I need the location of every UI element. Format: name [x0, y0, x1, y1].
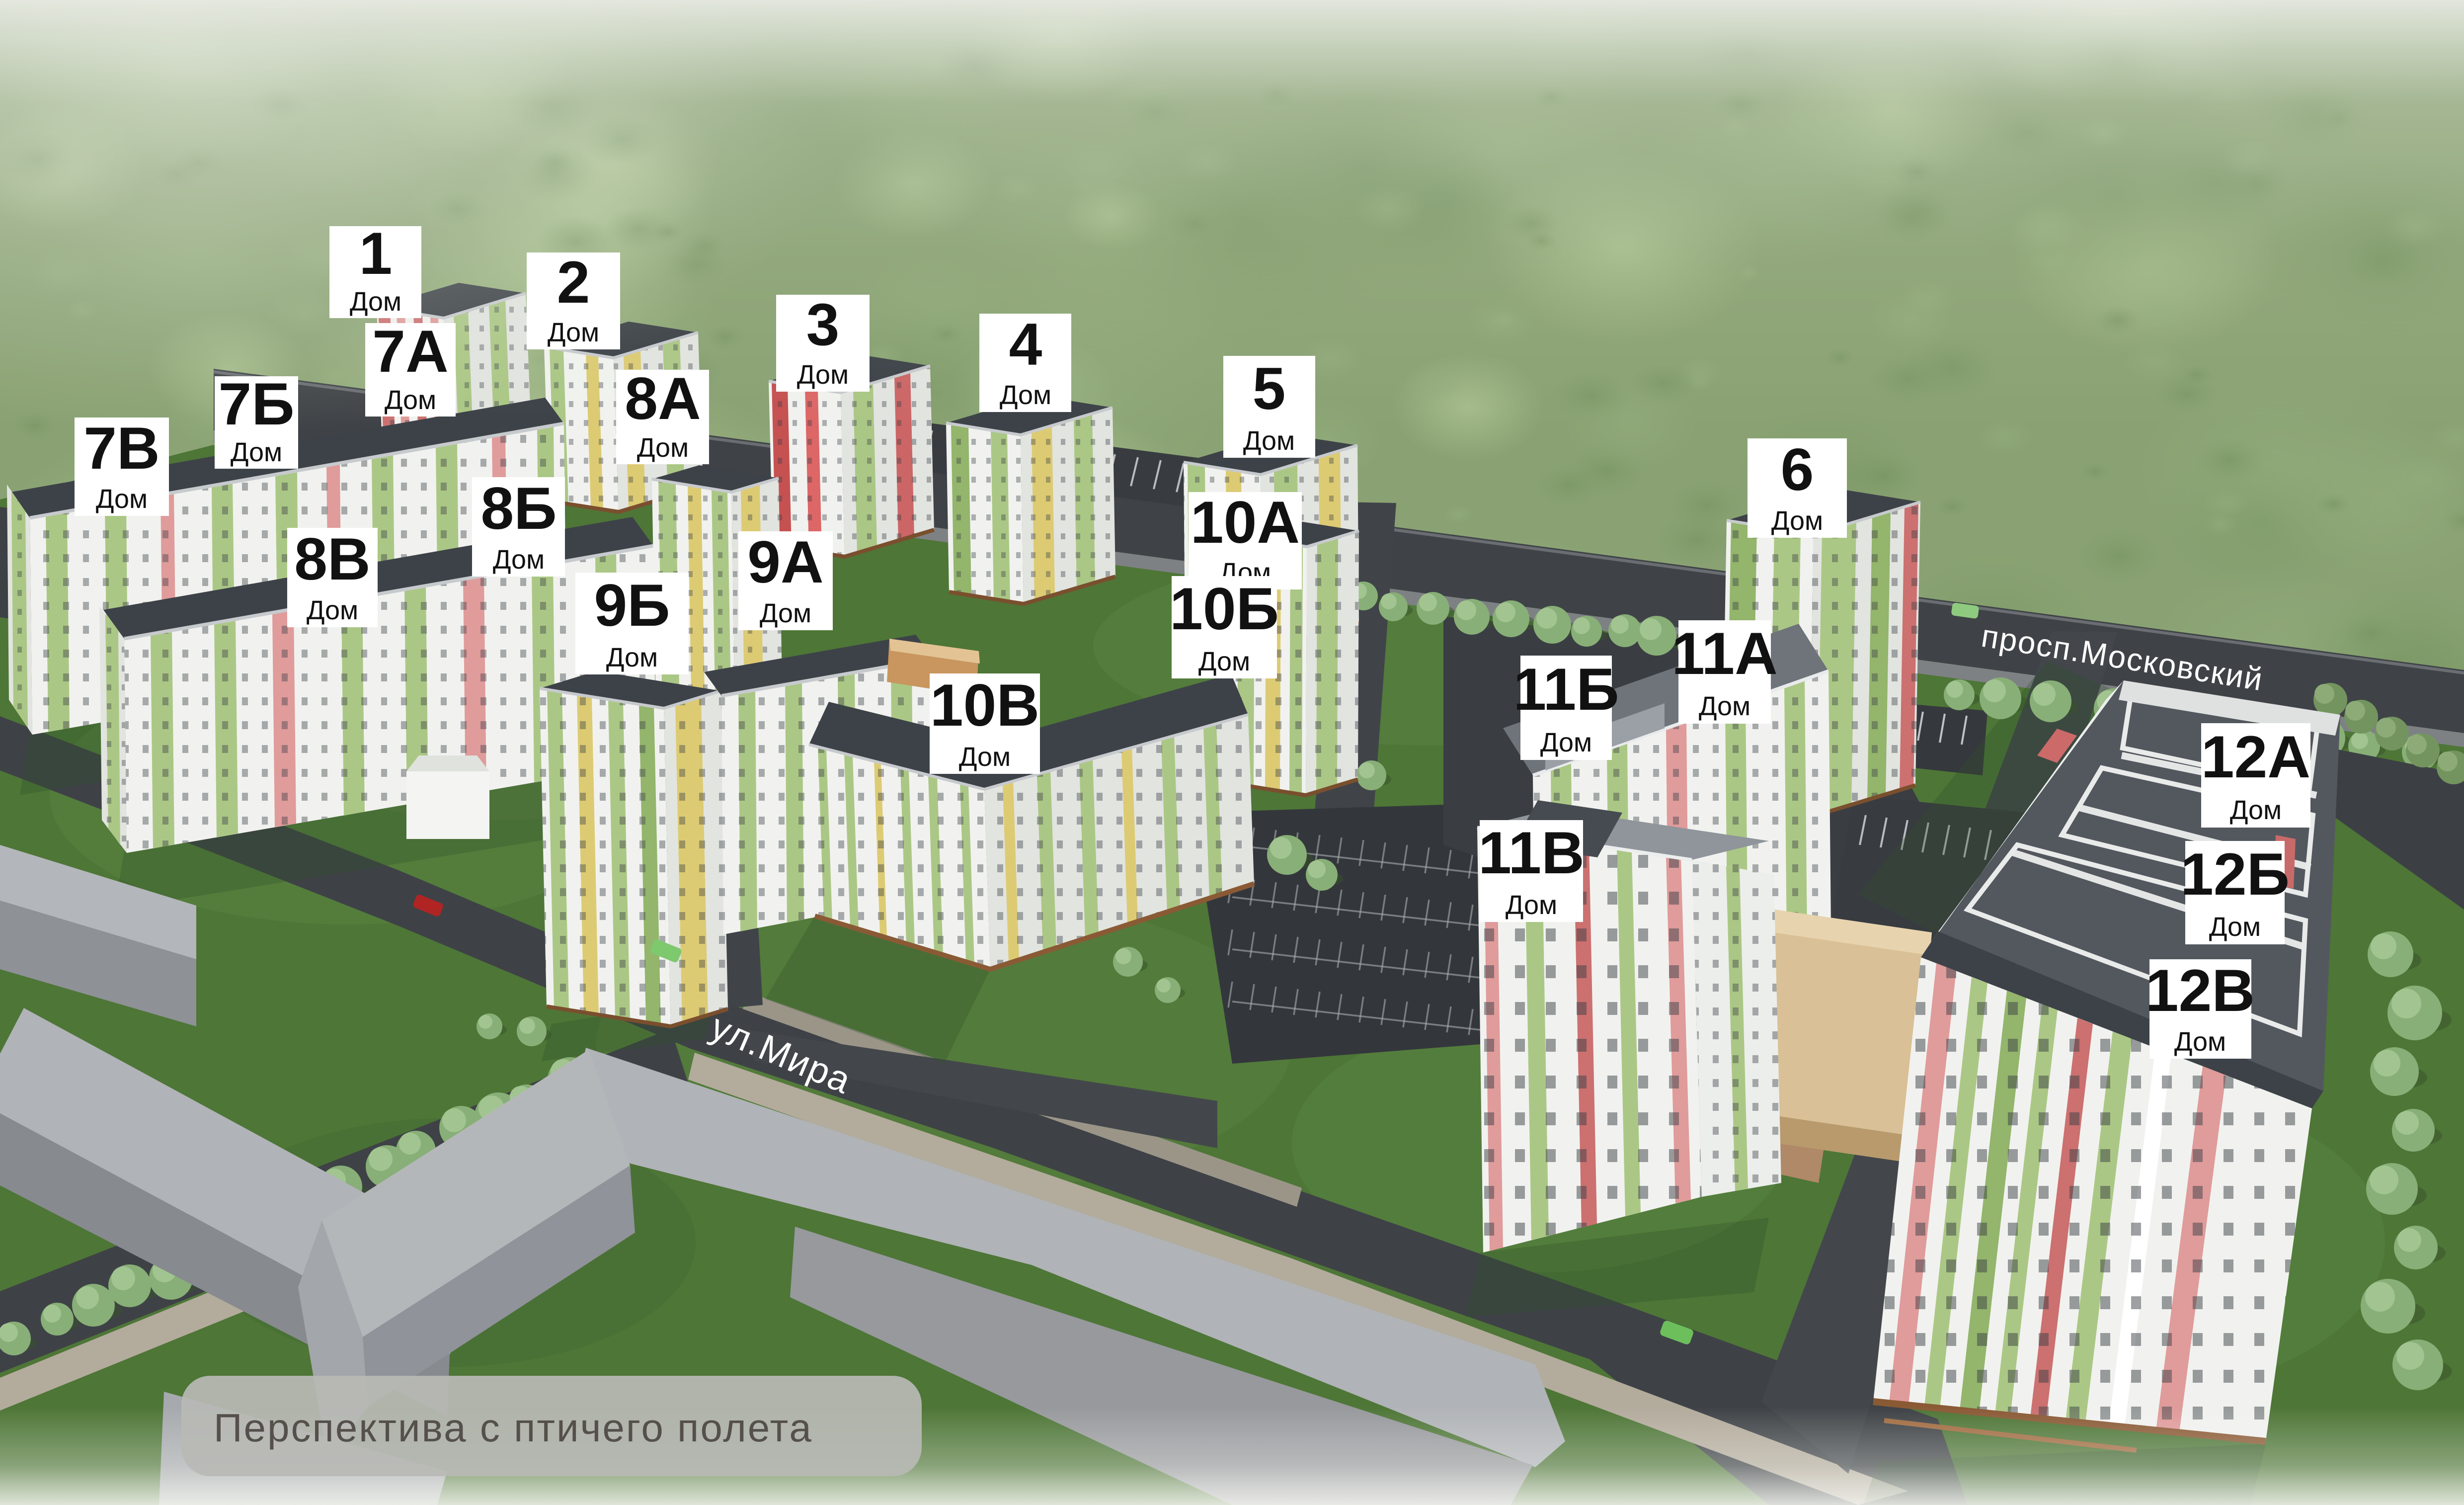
svg-text:12А: 12А — [2201, 724, 2310, 790]
svg-text:Дом: Дом — [1540, 728, 1592, 757]
svg-text:Дом: Дом — [1243, 426, 1295, 456]
svg-text:10Б: 10Б — [1170, 576, 1279, 642]
svg-text:12Б: 12Б — [2180, 841, 2290, 908]
svg-text:9Б: 9Б — [594, 572, 670, 639]
svg-text:Дом: Дом — [2230, 795, 2282, 825]
svg-text:12В: 12В — [2146, 957, 2255, 1024]
svg-text:10А: 10А — [1191, 489, 1300, 556]
svg-text:Дом: Дом — [760, 598, 811, 628]
svg-text:Дом: Дом — [1699, 691, 1750, 721]
svg-text:Дом: Дом — [548, 318, 599, 347]
svg-text:Перспектива с птичего полета: Перспектива с птичего полета — [214, 1406, 813, 1450]
svg-text:5: 5 — [1253, 355, 1286, 422]
svg-text:11А: 11А — [1671, 620, 1778, 687]
svg-text:Дом: Дом — [1000, 380, 1051, 410]
svg-text:Дом: Дом — [959, 742, 1011, 772]
svg-text:Дом: Дом — [307, 595, 358, 625]
svg-text:Дом: Дом — [2174, 1027, 2226, 1057]
svg-text:2: 2 — [557, 249, 590, 316]
svg-text:9А: 9А — [747, 529, 823, 595]
svg-text:11Б: 11Б — [1513, 656, 1619, 723]
svg-text:Дом: Дом — [797, 360, 849, 390]
svg-text:3: 3 — [806, 291, 840, 358]
svg-text:7Б: 7Б — [219, 371, 295, 437]
svg-text:7А: 7А — [372, 318, 448, 385]
svg-text:Дом: Дом — [606, 643, 658, 672]
svg-text:1: 1 — [359, 220, 393, 287]
svg-text:8В: 8В — [294, 526, 370, 592]
svg-text:6: 6 — [1781, 436, 1814, 503]
svg-text:Дом: Дом — [1771, 506, 1823, 536]
svg-text:Дом: Дом — [1198, 647, 1250, 676]
svg-text:Дом: Дом — [637, 433, 689, 463]
svg-text:Дом: Дом — [231, 437, 282, 467]
svg-text:4: 4 — [1009, 311, 1042, 378]
svg-text:8А: 8А — [625, 365, 701, 432]
svg-text:Дом: Дом — [493, 545, 545, 575]
svg-text:Дом: Дом — [96, 484, 148, 514]
svg-text:Дом: Дом — [385, 385, 436, 415]
svg-text:11В: 11В — [1478, 820, 1585, 886]
svg-text:10В: 10В — [930, 672, 1039, 739]
svg-text:Дом: Дом — [350, 287, 401, 317]
svg-text:Дом: Дом — [2209, 912, 2261, 942]
svg-text:7В: 7В — [83, 415, 159, 482]
svg-text:8Б: 8Б — [481, 475, 557, 542]
svg-text:Дом: Дом — [1506, 890, 1557, 920]
